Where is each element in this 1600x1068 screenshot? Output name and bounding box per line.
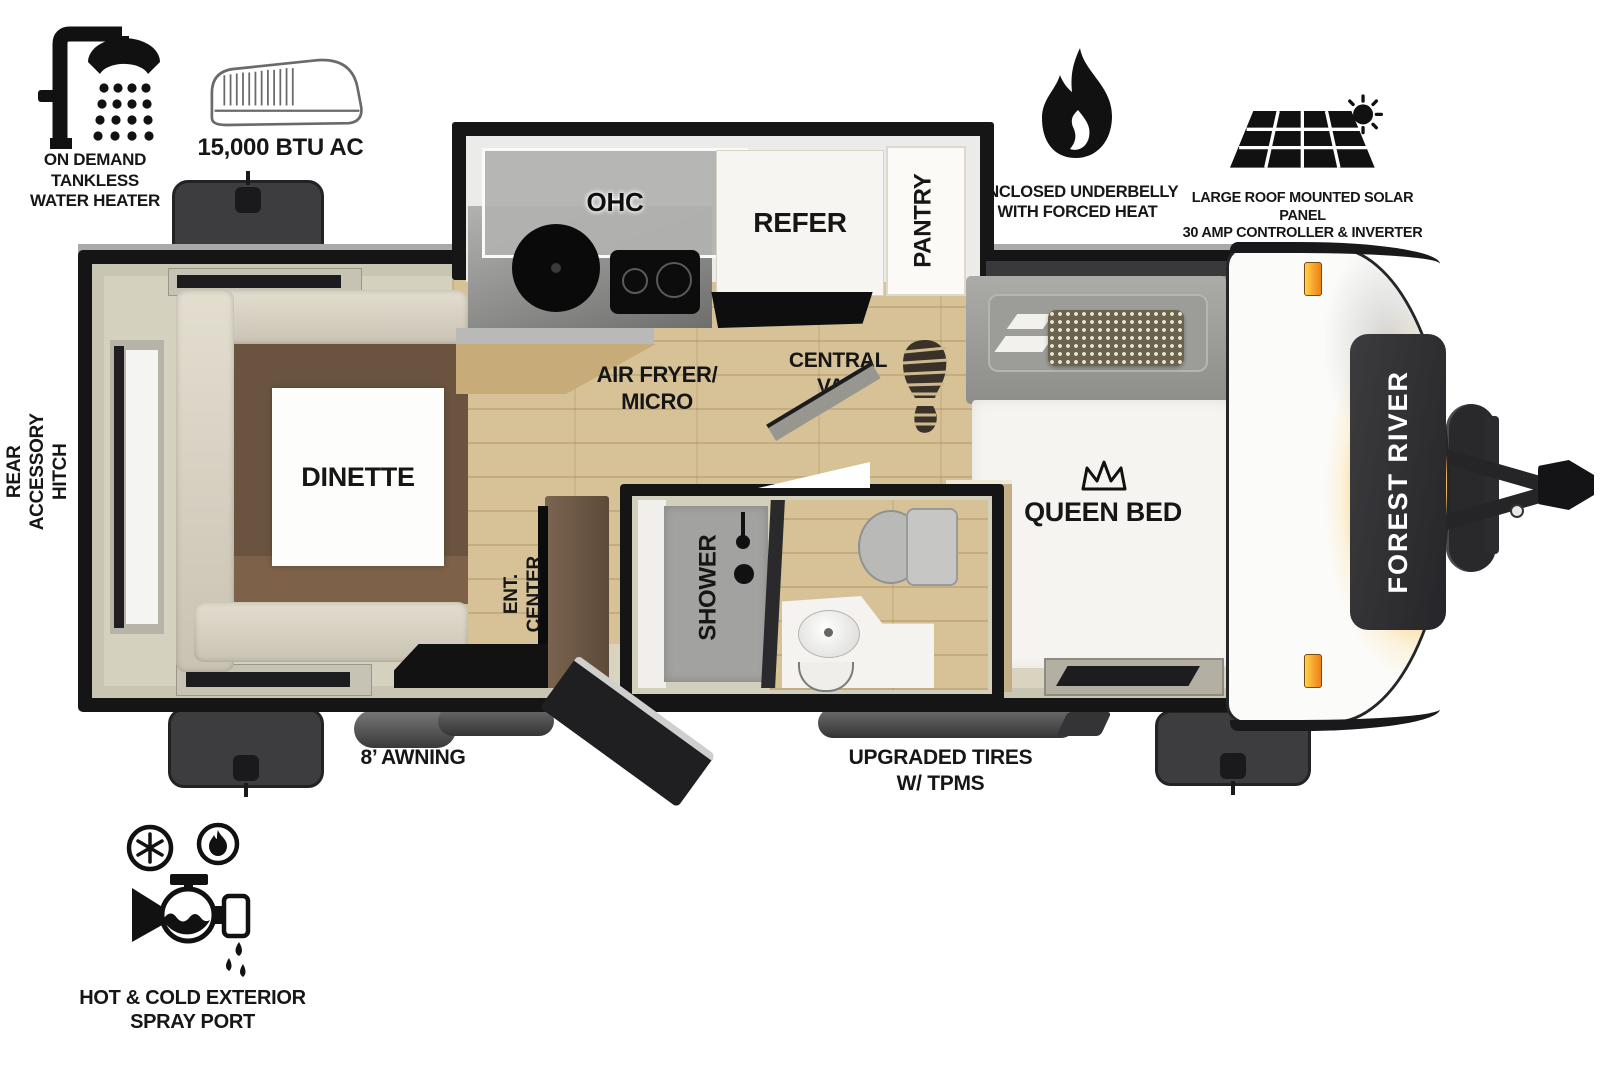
air-fryer-label: AIR FRYER/ MICRO — [567, 362, 747, 416]
spray-port-line: HOT & COLD EXTERIOR — [55, 986, 330, 1010]
rear-wall-window — [110, 340, 164, 634]
shower-curb — [638, 500, 666, 688]
flame-icon — [1028, 46, 1128, 164]
water-heater-label: ON DEMAND TANKLESS WATER HEATER — [5, 150, 185, 212]
spray-port-line: SPRAY PORT — [55, 1010, 330, 1034]
window-glass — [126, 350, 158, 624]
refer-label: REFER — [753, 206, 846, 240]
tongue-jack-post — [1484, 416, 1499, 554]
roof-vent-foot — [1044, 658, 1224, 696]
window-glass — [186, 672, 350, 687]
cap-trim-bottom — [1230, 698, 1440, 731]
tires-line: UPGRADED TIRES — [818, 745, 1063, 771]
shower-head-icon — [22, 14, 182, 156]
boot-print-icon — [896, 338, 954, 436]
kitchen-cabinet-edge — [456, 328, 654, 344]
refrigerator-base — [708, 292, 876, 328]
kitchen-sink — [512, 224, 600, 312]
brand-name: FOREST RIVER — [1383, 370, 1414, 594]
dinette-table: DINETTE — [272, 388, 444, 566]
hitch-bolt — [1510, 504, 1524, 518]
central-vac-line: CENTRAL — [768, 348, 908, 374]
brand-badge: FOREST RIVER — [1350, 334, 1446, 630]
air-fryer-line: MICRO — [567, 389, 747, 416]
air-fryer-line: AIR FRYER/ — [567, 362, 747, 389]
pantry-label: PANTRY — [908, 151, 937, 291]
ac-label: 15,000 BTU AC — [168, 133, 393, 162]
awning-rail-tip — [1056, 712, 1111, 736]
sink-drain — [551, 263, 561, 273]
window-sash — [114, 346, 124, 628]
marker-light-bottom — [1304, 654, 1322, 688]
refrigerator: REFER — [716, 150, 884, 296]
vent-glass — [1056, 666, 1200, 686]
tires-label: UPGRADED TIRES W/ TPMS — [818, 745, 1063, 796]
tires-line: W/ TPMS — [818, 771, 1063, 797]
awning-label: 8’ AWNING — [330, 745, 496, 771]
hitch-coupler — [1538, 460, 1594, 510]
spray-port-icon — [118, 820, 268, 982]
bedroom-front-window — [986, 258, 1248, 276]
solar-line: LARGE ROOF MOUNTED SOLAR PANEL — [1175, 190, 1430, 225]
bed-pillow — [1048, 310, 1184, 366]
ohc-label: OHC — [587, 187, 644, 219]
water-heater-line: ON DEMAND — [5, 150, 185, 171]
window-glass — [177, 275, 341, 288]
entry-step-mat — [394, 644, 548, 688]
rear-hitch-label: REAR ACCESSORY HITCH — [3, 372, 73, 572]
burner — [622, 268, 648, 294]
stabilizer-jack-rear-bottom — [168, 708, 324, 788]
rear-hitch-line: REAR — [3, 372, 26, 572]
faucet-dot — [824, 628, 833, 637]
water-heater-line: TANKLESS — [5, 171, 185, 192]
crown-icon — [1078, 458, 1130, 494]
dinette-label: DINETTE — [301, 461, 414, 494]
burner — [656, 262, 692, 298]
spray-port-label: HOT & COLD EXTERIOR SPRAY PORT — [55, 986, 330, 1035]
toilet-tank — [906, 508, 958, 586]
ac-unit-icon — [203, 52, 363, 134]
solar-panel-icon — [1225, 86, 1383, 186]
floorplan-canvas: ON DEMAND TANKLESS WATER HEATER 15,000 B… — [0, 0, 1600, 1068]
water-heater-line: WATER HEATER — [5, 191, 185, 212]
shower-head-glyph — [728, 508, 758, 598]
shower-label: SHOWER — [693, 513, 722, 663]
queen-bed-label: QUEEN BED — [988, 496, 1218, 529]
cooktop — [610, 250, 700, 314]
rear-hitch-line: ACCESSORY — [26, 372, 49, 572]
marker-light-top — [1304, 262, 1322, 296]
rear-hitch-line: HITCH — [50, 372, 73, 572]
awning-rail-right — [818, 708, 1076, 738]
